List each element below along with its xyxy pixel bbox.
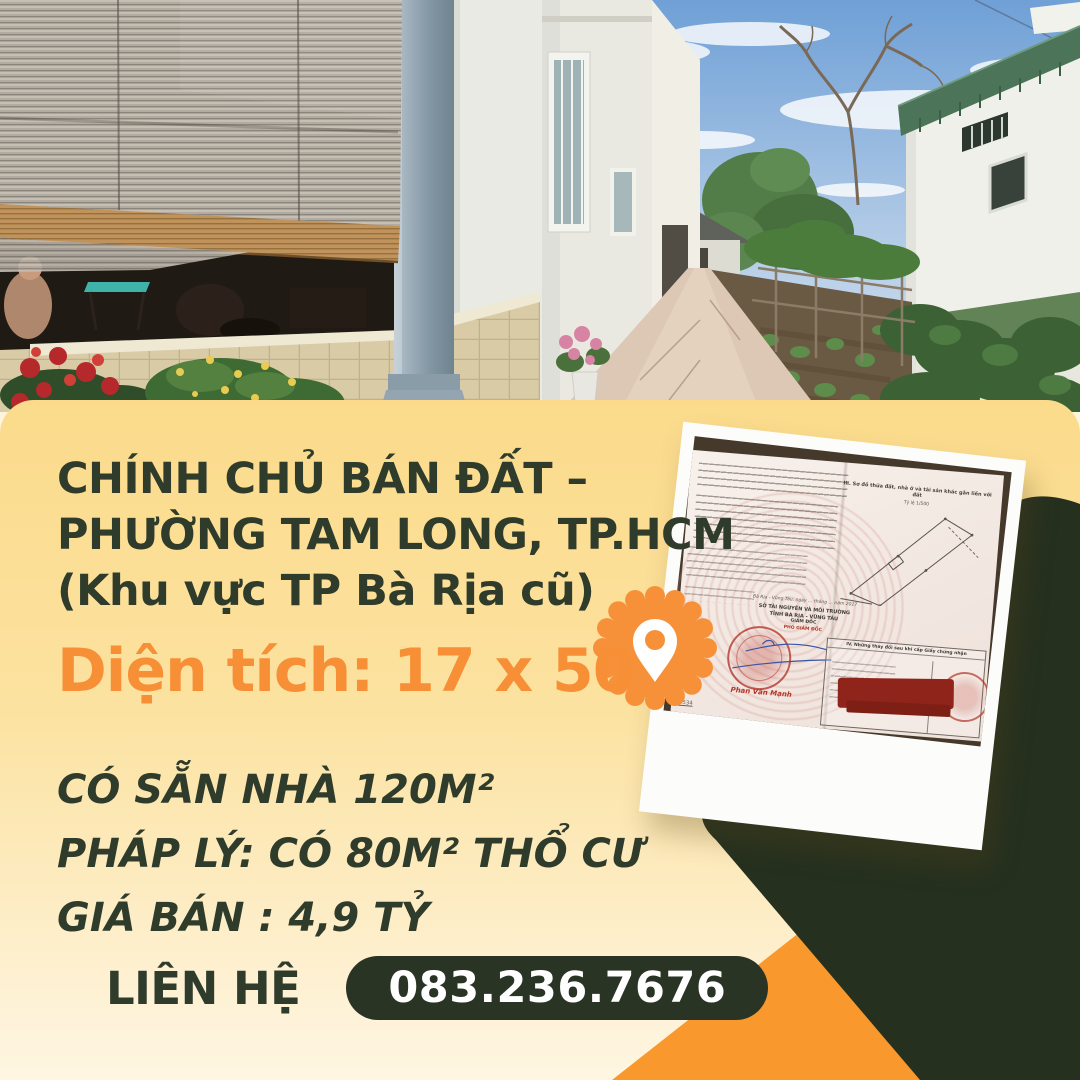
window [990,154,1026,212]
info-panel: III. Sơ đồ thửa đất, nhà ở và tài sản kh… [0,400,1080,1080]
headline: CHÍNH CHỦ BÁN ĐẤT – PHƯỜNG TAM LONG, TP.… [57,451,734,619]
headline-line-3: (Khu vực TP Bà Rịa cũ) [57,563,734,619]
contact-label: LIÊN HỆ [106,962,300,1015]
detail-line-house: CÓ SẴN NHÀ 120M² [57,758,643,822]
headline-line-1: CHÍNH CHỦ BÁN ĐẤT – [57,451,734,507]
detail-line-legal: PHÁP LÝ: CÓ 80M² THỔ CƯ [57,822,643,886]
detail-line-price: GIÁ BÁN : 4,9 TỶ [57,886,643,950]
headline-line-2: PHƯỜNG TAM LONG, TP.HCM [57,507,734,563]
property-details: CÓ SẴN NHÀ 120M² PHÁP LÝ: CÓ 80M² THỔ CƯ… [57,758,643,950]
certificate-section-iv-box: IV. Những thay đổi sau khi cấp Giấy chứn… [820,638,987,739]
right-wing-wall [452,0,542,412]
contact-row: LIÊN HỆ 083.236.7676 [106,956,768,1020]
phone-number: 083.236.7676 [388,963,726,1013]
property-photo [0,0,1080,412]
poster-canvas: III. Sơ đồ thửa đất, nhà ở và tài sản kh… [0,0,1080,1080]
area-size-text: Diện tích: 17 x 50 [57,636,634,706]
phone-button[interactable]: 083.236.7676 [346,956,768,1020]
bamboo-blind [0,0,402,272]
property-photo-scene [0,0,1080,412]
